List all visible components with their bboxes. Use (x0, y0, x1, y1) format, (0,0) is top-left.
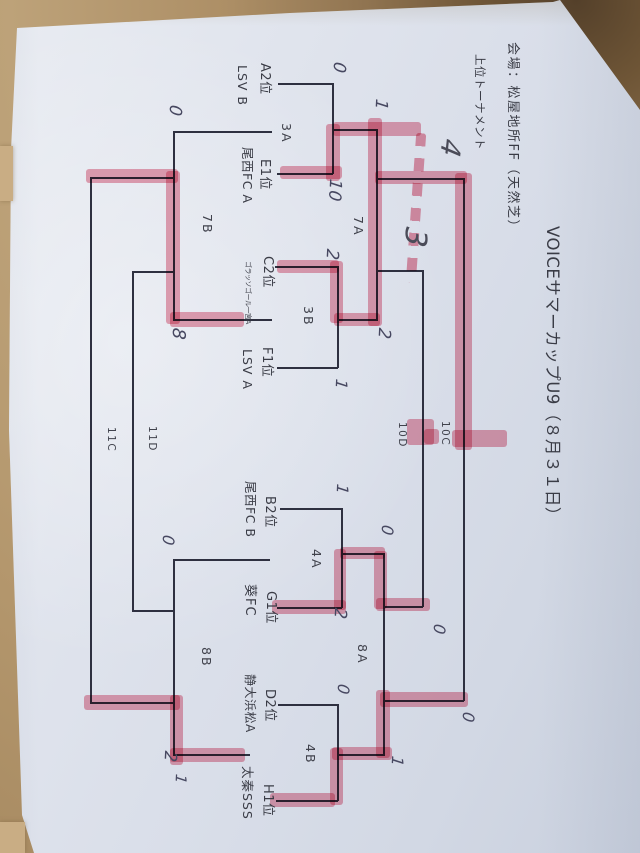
score-8b-bottom: 2 (160, 750, 178, 763)
team-name-b2: 尾西FC B (244, 481, 257, 537)
tournament-title: VOICEサマーカップU9（８月３１日） (544, 226, 561, 524)
match-label-7a: 7A (352, 216, 365, 237)
score-10c-bottom: 0 (460, 711, 476, 724)
highlighter-stroke (270, 793, 335, 807)
tape-left-edge (0, 146, 13, 201)
bracket-line (173, 559, 270, 561)
score-3a-bottom: 10 (325, 178, 343, 203)
highlighter-stroke (166, 171, 180, 324)
highlighter-stroke (376, 598, 430, 611)
score-4a-top: 1 (334, 483, 350, 496)
match-label-3b: 3B (302, 306, 315, 327)
score-8a-bottom: 1 (389, 755, 405, 768)
bracket-line (132, 610, 174, 612)
score-3b-top: 2 (322, 248, 340, 261)
highlighter-stroke (334, 313, 380, 326)
highlighter-stroke (380, 692, 468, 707)
team-name-a2: LSV B (236, 65, 249, 106)
match-label-7b: 7B (201, 214, 214, 235)
highlighter-stroke (170, 312, 244, 327)
team-seed-b2: B2位 (263, 496, 276, 528)
venue-line: 会場：松屋地所FF（天然芝） (506, 42, 519, 234)
match-label-8b: 8B (200, 647, 213, 668)
bracket-name: 上位トーナメント (474, 54, 486, 150)
bracket-line (90, 177, 92, 704)
highlighter-stroke (455, 173, 472, 450)
score-7a-top: 1 (371, 98, 389, 111)
score-4a-bottom: 2 (330, 607, 348, 620)
score-7a-bottom: 2 (374, 327, 392, 340)
score-7b-top: 0 (165, 104, 183, 117)
match-label-10d: 10D (397, 422, 408, 448)
bracket-line (132, 271, 134, 612)
score-10d-bottom: 0 (431, 623, 447, 636)
bracket-line (278, 83, 333, 85)
match-label-11c: 11C (106, 427, 117, 452)
match-label-4a: 4A (310, 549, 323, 570)
match-label-3a: 3A (280, 123, 293, 144)
team-name-c2: ゴラッソゴール一宮A (244, 261, 251, 324)
highlighter-stroke (86, 169, 178, 183)
score-8b-top: 0 (160, 534, 176, 547)
highlighter-stroke (407, 419, 434, 445)
highlighter-stroke (452, 430, 507, 447)
team-seed-c2: C2位 (261, 256, 274, 288)
tape-bottom-left (0, 822, 25, 853)
match-label-8a: 8A (356, 644, 369, 665)
score-3b-bottom: 1 (333, 378, 349, 391)
team-seed-g1: G1位 (264, 591, 277, 624)
team-name-d2: 静大浜松A (244, 674, 256, 733)
score-7b-bottom: 8 (168, 327, 187, 341)
team-seed-f1: F1位 (260, 347, 273, 377)
team-seed-e1: E1位 (258, 159, 271, 190)
extra-pen-mark: 1 (173, 773, 188, 785)
highlighter-stroke (84, 695, 180, 710)
team-seed-h1: H1位 (261, 784, 274, 817)
team-name-e1: 尾西FC A (241, 147, 254, 203)
match-label-11d: 11D (147, 426, 158, 452)
score-8a-top: 0 (379, 524, 395, 537)
bracket-line (278, 704, 338, 706)
bracket-line (277, 367, 338, 369)
bracket-line (280, 508, 342, 510)
team-name-f1: LSV A (241, 349, 254, 390)
team-seed-a2: A2位 (258, 63, 271, 95)
match-label-4b: 4B (304, 744, 317, 765)
score-3a-top: 0 (329, 61, 347, 74)
score-4b-top: 0 (335, 683, 351, 696)
team-name-g1: 葵FC (243, 584, 256, 617)
match-label-10c: 10C (440, 421, 451, 446)
team-name-h1: 太秦SSS (241, 766, 254, 820)
bracket-line (173, 131, 272, 133)
team-seed-d2: D2位 (263, 689, 276, 722)
photo-of-bracket-sheet: VOICEサマーカップU9（８月３１日） 会場：松屋地所FF（天然芝） 上位トー… (0, 0, 640, 853)
highlighter-stroke (368, 118, 382, 326)
